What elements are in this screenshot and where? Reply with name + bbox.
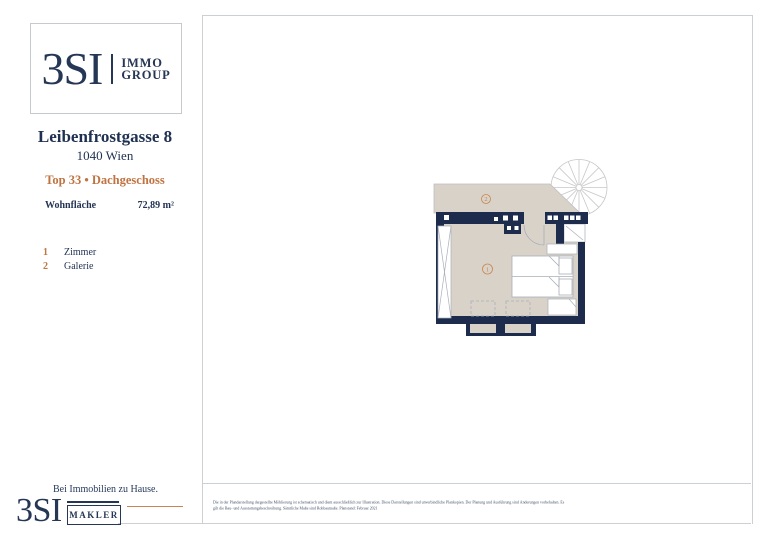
logo-divider [111,54,113,84]
legend-num: 1 [43,247,55,258]
unit-title: Top 33 • Dachgeschoss [10,173,200,188]
living-area-label: Wohnfläche [45,200,96,211]
footer-tagline: Bei Immobilien zu Hause. [53,484,158,495]
address-title: Leibenfrostgasse 8 [10,127,200,147]
floor-plan: 1 2 [420,150,620,350]
headboard-shelf [547,244,577,254]
legend-item-zimmer: 1 Zimmer [43,247,96,261]
company-logo: 3SI IMMO GROUP [30,23,182,114]
accent-orange-line [127,506,183,507]
room-legend: 1 Zimmer 2 Galerie [43,247,96,275]
logo-word-immo: IMMO [121,57,170,69]
logo-words: IMMO GROUP [121,57,170,81]
wall-top [436,212,524,224]
double-bed [512,256,573,297]
legend-label: Zimmer [64,247,96,258]
closet-pocket [564,224,585,242]
living-area-value: 72,89 m² [138,200,174,211]
logo-brand-text: 3SI [41,51,102,87]
address-city: 1040 Wien [10,148,200,164]
plan-sheet: 3SI IMMO GROUP Leibenfrostgasse 8 1040 W… [0,0,770,544]
logo-word-group: GROUP [121,69,170,81]
disclaimer-line-2: gilt die Bau- und Ausstattungsbeschreibu… [213,506,564,512]
wall-bottom [436,316,585,324]
svg-text:1: 1 [486,266,489,273]
footer-divider-line [202,483,751,484]
legend-num: 2 [43,261,55,272]
makler-rule-line [67,501,119,503]
footer-logo-brand: 3SI [16,495,62,527]
makler-text: MAKLER [69,510,119,520]
disclaimer-text: Die in der Plandarstellung dargestellte … [213,500,564,512]
bedroom-chest [548,299,576,315]
wall-right [578,242,585,318]
legend-label: Galerie [64,261,93,272]
living-area-row: Wohnfläche 72,89 m² [45,200,174,211]
legend-item-galerie: 2 Galerie [43,261,96,275]
window-glazing [438,226,451,318]
svg-text:2: 2 [484,196,487,203]
footer-logo-makler: MAKLER [67,505,121,525]
bottom-border-line [118,523,751,524]
